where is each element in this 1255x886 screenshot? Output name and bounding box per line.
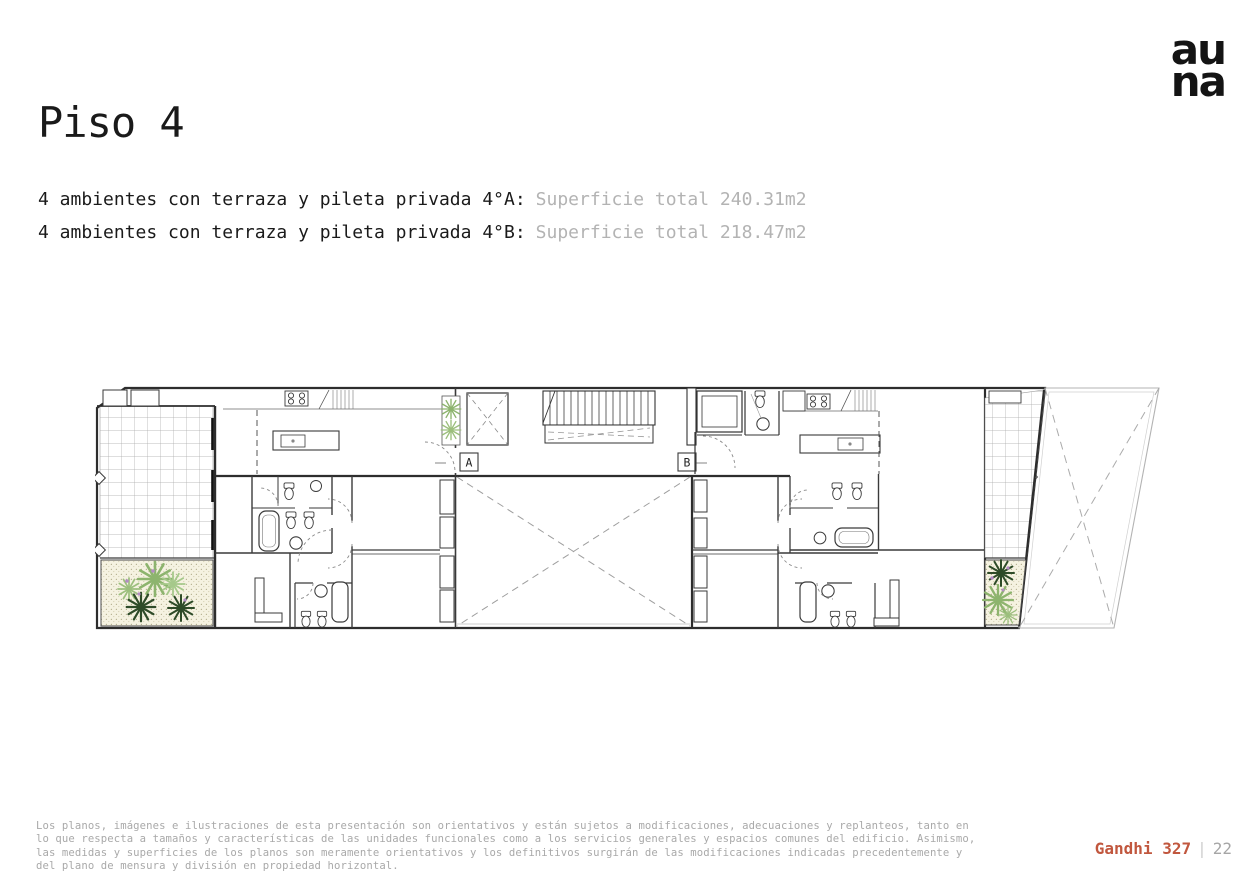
floor-plan: A B	[95, 378, 1161, 642]
planter-a	[101, 560, 213, 626]
page-title: Piso 4	[38, 98, 184, 147]
footer-disclaimer: Los planos, imágenes e ilustraciones de …	[36, 820, 996, 874]
footer-separator: |	[1197, 839, 1207, 858]
logo-line-2: na	[1171, 66, 1225, 98]
toilet-a1-icon	[284, 483, 294, 500]
stove-a-icon	[285, 391, 308, 406]
unit-a-row: 4 ambientes con terraza y pileta privada…	[38, 183, 807, 216]
project-name: Gandhi 327	[1095, 839, 1191, 858]
stairwell	[543, 391, 655, 443]
floor-plan-svg: A B	[95, 378, 1161, 642]
toilet-b1-icon	[832, 483, 842, 500]
toilet-b2-icon	[830, 611, 839, 627]
sink-a3-icon	[315, 585, 327, 597]
unit-a-label: 4 ambientes con terraza y pileta privada…	[38, 189, 526, 210]
unit-b-label: 4 ambientes con terraza y pileta privada…	[38, 222, 526, 243]
bidet-a-icon	[304, 512, 314, 529]
bidet-b2-icon	[846, 611, 855, 627]
toilet-core-b-icon	[755, 391, 765, 408]
unit-b-row: 4 ambientes con terraza y pileta privada…	[38, 216, 807, 249]
toilet-a3-icon	[301, 611, 310, 627]
unit-summary: 4 ambientes con terraza y pileta privada…	[38, 183, 807, 249]
unit-b-marker: B	[684, 456, 691, 470]
sink-b1-icon	[814, 532, 826, 544]
presentation-page: { "logo": { "line1": "au", "line2": "na"…	[0, 0, 1255, 886]
unit-a-area: Superficie total 240.31m2	[536, 189, 807, 210]
sink-a1-icon	[310, 480, 321, 491]
bidet-a2-icon	[317, 611, 326, 627]
unit-b-area: Superficie total 218.47m2	[536, 222, 807, 243]
sink-a2-icon	[290, 537, 302, 549]
toilet-a2-icon	[286, 512, 296, 529]
unit-a-marker: A	[466, 456, 473, 470]
bidet-b-icon	[852, 483, 862, 500]
footer-right: Gandhi 327|22	[1095, 839, 1232, 858]
page-number: 22	[1213, 839, 1232, 858]
planter-b	[983, 560, 1026, 625]
sink-b2-icon	[822, 585, 834, 597]
stove-b-icon	[807, 394, 830, 409]
sink-core-b-icon	[757, 418, 769, 430]
auna-logo: au na	[1171, 34, 1225, 98]
